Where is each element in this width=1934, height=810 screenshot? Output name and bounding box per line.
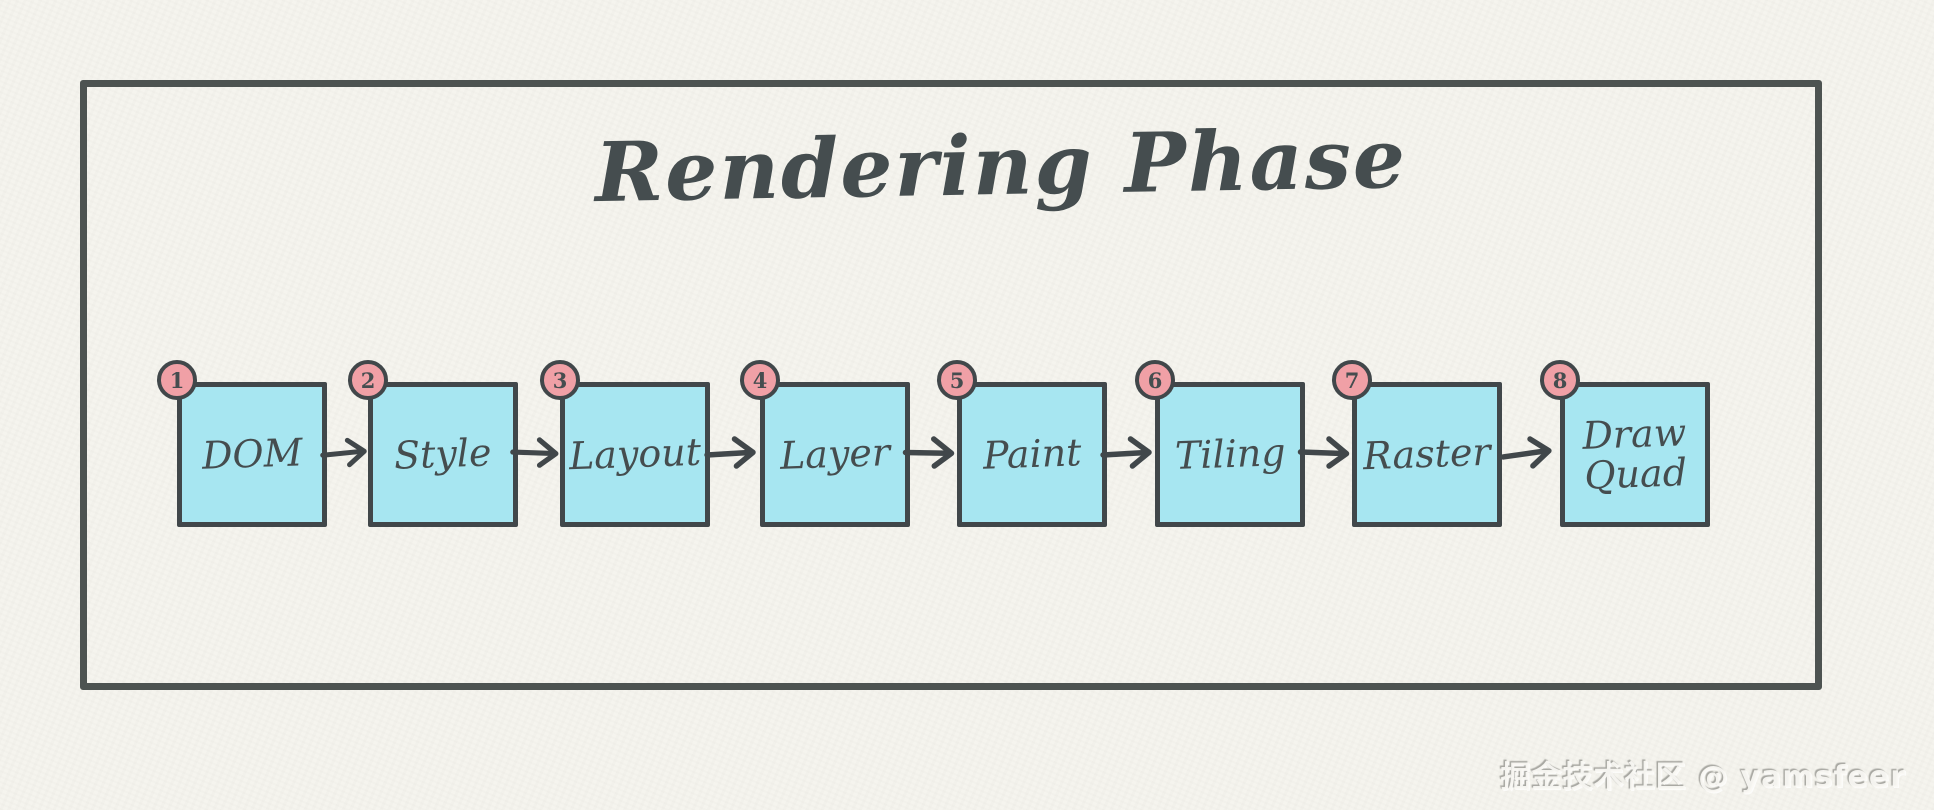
step-number-badge: 7 bbox=[1332, 360, 1372, 400]
step-number-badge: 6 bbox=[1135, 360, 1175, 400]
watermark: 掘金技术社区 @ yamsfeer bbox=[1501, 752, 1906, 796]
paper-background: Rendering Phase 1 DOM 2 Style 3 Layout 4… bbox=[0, 0, 1934, 810]
step-paint: 5 Paint bbox=[957, 382, 1107, 527]
step-label: DOM bbox=[197, 433, 307, 477]
step-number-badge: 8 bbox=[1540, 360, 1580, 400]
step-tiling: 6 Tiling bbox=[1155, 382, 1305, 527]
step-style: 2 Style bbox=[368, 382, 518, 527]
step-label: Layer bbox=[775, 432, 894, 476]
flow-arrow-icon bbox=[901, 430, 967, 475]
diagram-title: Rendering Phase bbox=[550, 110, 1452, 222]
flow-arrow-icon bbox=[318, 430, 378, 477]
flow-arrow-icon bbox=[1295, 430, 1361, 476]
step-label: Layout bbox=[564, 432, 705, 477]
flow-arrow-icon bbox=[1097, 430, 1164, 476]
step-label: Tiling bbox=[1170, 432, 1290, 476]
step-dom: 1 DOM bbox=[177, 382, 327, 527]
flow-arrow-icon bbox=[508, 430, 569, 476]
step-number-badge: 4 bbox=[740, 360, 780, 400]
step-number-badge: 3 bbox=[540, 360, 580, 400]
step-label: Draw Quad bbox=[1564, 412, 1707, 497]
step-number-badge: 1 bbox=[157, 360, 197, 400]
step-draw-quad: 8 Draw Quad bbox=[1560, 382, 1710, 527]
flow-arrow-icon bbox=[1492, 428, 1571, 477]
step-layer: 4 Layer bbox=[760, 382, 910, 527]
flow-arrow-icon bbox=[700, 430, 769, 476]
step-number-badge: 2 bbox=[348, 360, 388, 400]
step-layout: 3 Layout bbox=[560, 382, 710, 527]
step-label: Paint bbox=[978, 433, 1086, 477]
step-raster: 7 Raster bbox=[1352, 382, 1502, 527]
step-number-badge: 5 bbox=[937, 360, 977, 400]
step-label: Style bbox=[390, 433, 497, 477]
step-label: Raster bbox=[1359, 432, 1496, 477]
